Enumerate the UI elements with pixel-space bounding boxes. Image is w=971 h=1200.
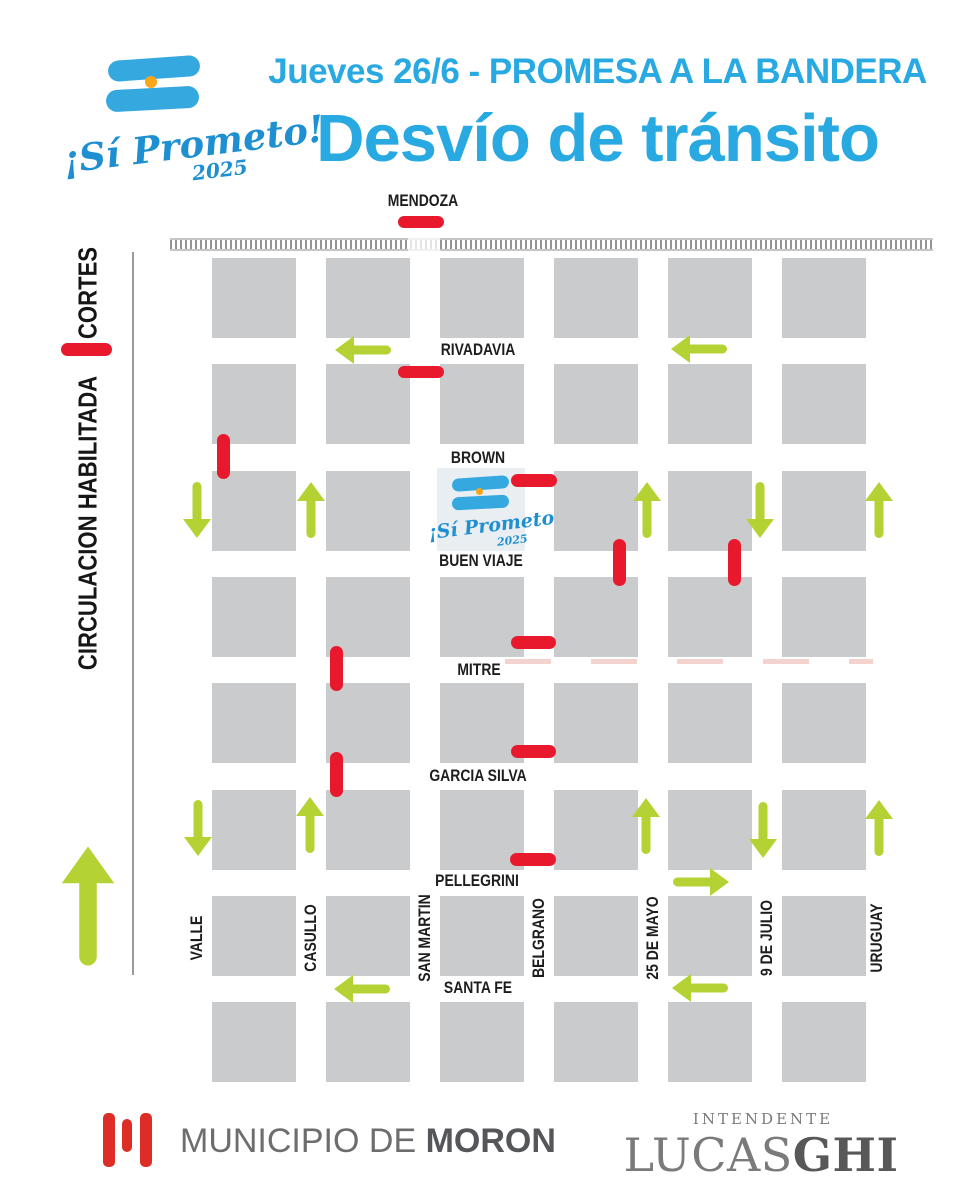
city-block xyxy=(440,896,524,976)
street-label: SANTA FE xyxy=(444,978,512,998)
city-block xyxy=(212,896,296,976)
city-block xyxy=(440,1002,524,1082)
closure-bar xyxy=(511,474,557,487)
city-block xyxy=(668,471,752,551)
direction-arrow xyxy=(631,798,661,854)
closure-bar xyxy=(510,853,556,866)
city-block xyxy=(668,258,752,338)
city-block xyxy=(668,896,752,976)
city-block xyxy=(782,1002,866,1082)
railway-crossing-gap xyxy=(408,238,440,251)
closure-bar xyxy=(728,539,741,586)
closure-bar xyxy=(398,366,444,378)
city-block xyxy=(668,790,752,870)
city-block xyxy=(782,364,866,444)
city-block xyxy=(668,683,752,763)
direction-arrow xyxy=(335,335,391,365)
street-label: CASULLO xyxy=(301,904,321,971)
direction-arrow xyxy=(296,482,326,538)
city-block xyxy=(554,577,638,657)
city-block xyxy=(326,1002,410,1082)
municipio-bold: MORON xyxy=(426,1122,556,1160)
city-block xyxy=(554,258,638,338)
direction-arrow xyxy=(183,800,213,856)
city-block xyxy=(668,577,752,657)
city-block xyxy=(212,683,296,763)
direction-arrow xyxy=(864,800,894,856)
municipio-text: MUNICIPIO DE MORON xyxy=(180,1122,556,1161)
street-label: MITRE xyxy=(457,660,500,680)
closure-bar xyxy=(511,636,556,649)
block-logo-year: 2025 xyxy=(496,532,528,549)
street-label: 9 DE JULIO xyxy=(757,900,777,976)
street-label: 25 DE MAYO xyxy=(643,896,663,979)
direction-arrow xyxy=(671,334,727,364)
closure-bar xyxy=(398,216,444,228)
city-block xyxy=(554,1002,638,1082)
city-block xyxy=(326,896,410,976)
city-block xyxy=(782,258,866,338)
city-block xyxy=(212,471,296,551)
intendente-name: LUCASGHI xyxy=(624,1128,899,1182)
intendente-label: INTENDENTE xyxy=(693,1110,833,1128)
city-block xyxy=(326,683,410,763)
city-block xyxy=(440,364,524,444)
traffic-diversion-poster: ¡Sí Prometo! 2025 Jueves 26/6 - PROMESA … xyxy=(0,0,971,1200)
closure-bar xyxy=(613,539,626,586)
city-block xyxy=(782,577,866,657)
closure-bar xyxy=(330,752,343,797)
city-block xyxy=(668,364,752,444)
city-block xyxy=(554,896,638,976)
block-logo-script: ¡Sí Prometo! xyxy=(427,506,564,544)
street-label: URUGUAY xyxy=(867,903,887,972)
city-block xyxy=(554,364,638,444)
city-block xyxy=(212,577,296,657)
closure-bar xyxy=(217,434,230,479)
closure-bar xyxy=(330,646,343,691)
direction-arrow xyxy=(632,482,662,538)
city-block xyxy=(554,683,638,763)
city-block xyxy=(782,896,866,976)
street-label: BROWN xyxy=(451,448,505,468)
city-block xyxy=(326,364,410,444)
name-bold: GHI xyxy=(793,1128,899,1182)
direction-arrow xyxy=(748,802,778,858)
city-block xyxy=(668,1002,752,1082)
municipio-prefix: MUNICIPIO DE xyxy=(180,1122,426,1160)
street-label: VALLE xyxy=(187,916,207,961)
city-block xyxy=(326,471,410,551)
street-label: MENDOZA xyxy=(388,191,458,211)
direction-arrow xyxy=(673,867,729,897)
direction-arrow xyxy=(295,797,325,853)
city-block xyxy=(212,790,296,870)
mitre-route-dashes xyxy=(505,659,873,664)
street-label: RIVADAVIA xyxy=(441,340,516,360)
city-block xyxy=(212,1002,296,1082)
city-block xyxy=(782,683,866,763)
street-label: GARCIA SILVA xyxy=(429,766,526,786)
city-block xyxy=(326,790,410,870)
closure-bar xyxy=(511,745,556,758)
city-block xyxy=(326,258,410,338)
city-block xyxy=(554,790,638,870)
street-label: SAN MARTIN xyxy=(415,894,435,982)
street-label: PELLEGRINI xyxy=(435,871,519,891)
street-label: BUEN VIAJE xyxy=(439,551,523,571)
city-block xyxy=(554,471,638,551)
city-block xyxy=(212,258,296,338)
city-block xyxy=(782,471,866,551)
railway-track xyxy=(170,238,933,251)
street-label: BELGRANO xyxy=(529,898,549,978)
street-map: ¡Sí Prometo! 2025 MENDOZARIVADAVIABROWNB… xyxy=(0,0,971,1100)
name-light: LUCAS xyxy=(624,1128,793,1182)
city-block xyxy=(782,790,866,870)
direction-arrow xyxy=(745,482,775,538)
direction-arrow xyxy=(864,482,894,538)
direction-arrow xyxy=(334,974,390,1004)
city-block xyxy=(440,258,524,338)
direction-arrow xyxy=(182,482,212,538)
direction-arrow xyxy=(672,973,728,1003)
city-block xyxy=(326,577,410,657)
city-block xyxy=(212,364,296,444)
